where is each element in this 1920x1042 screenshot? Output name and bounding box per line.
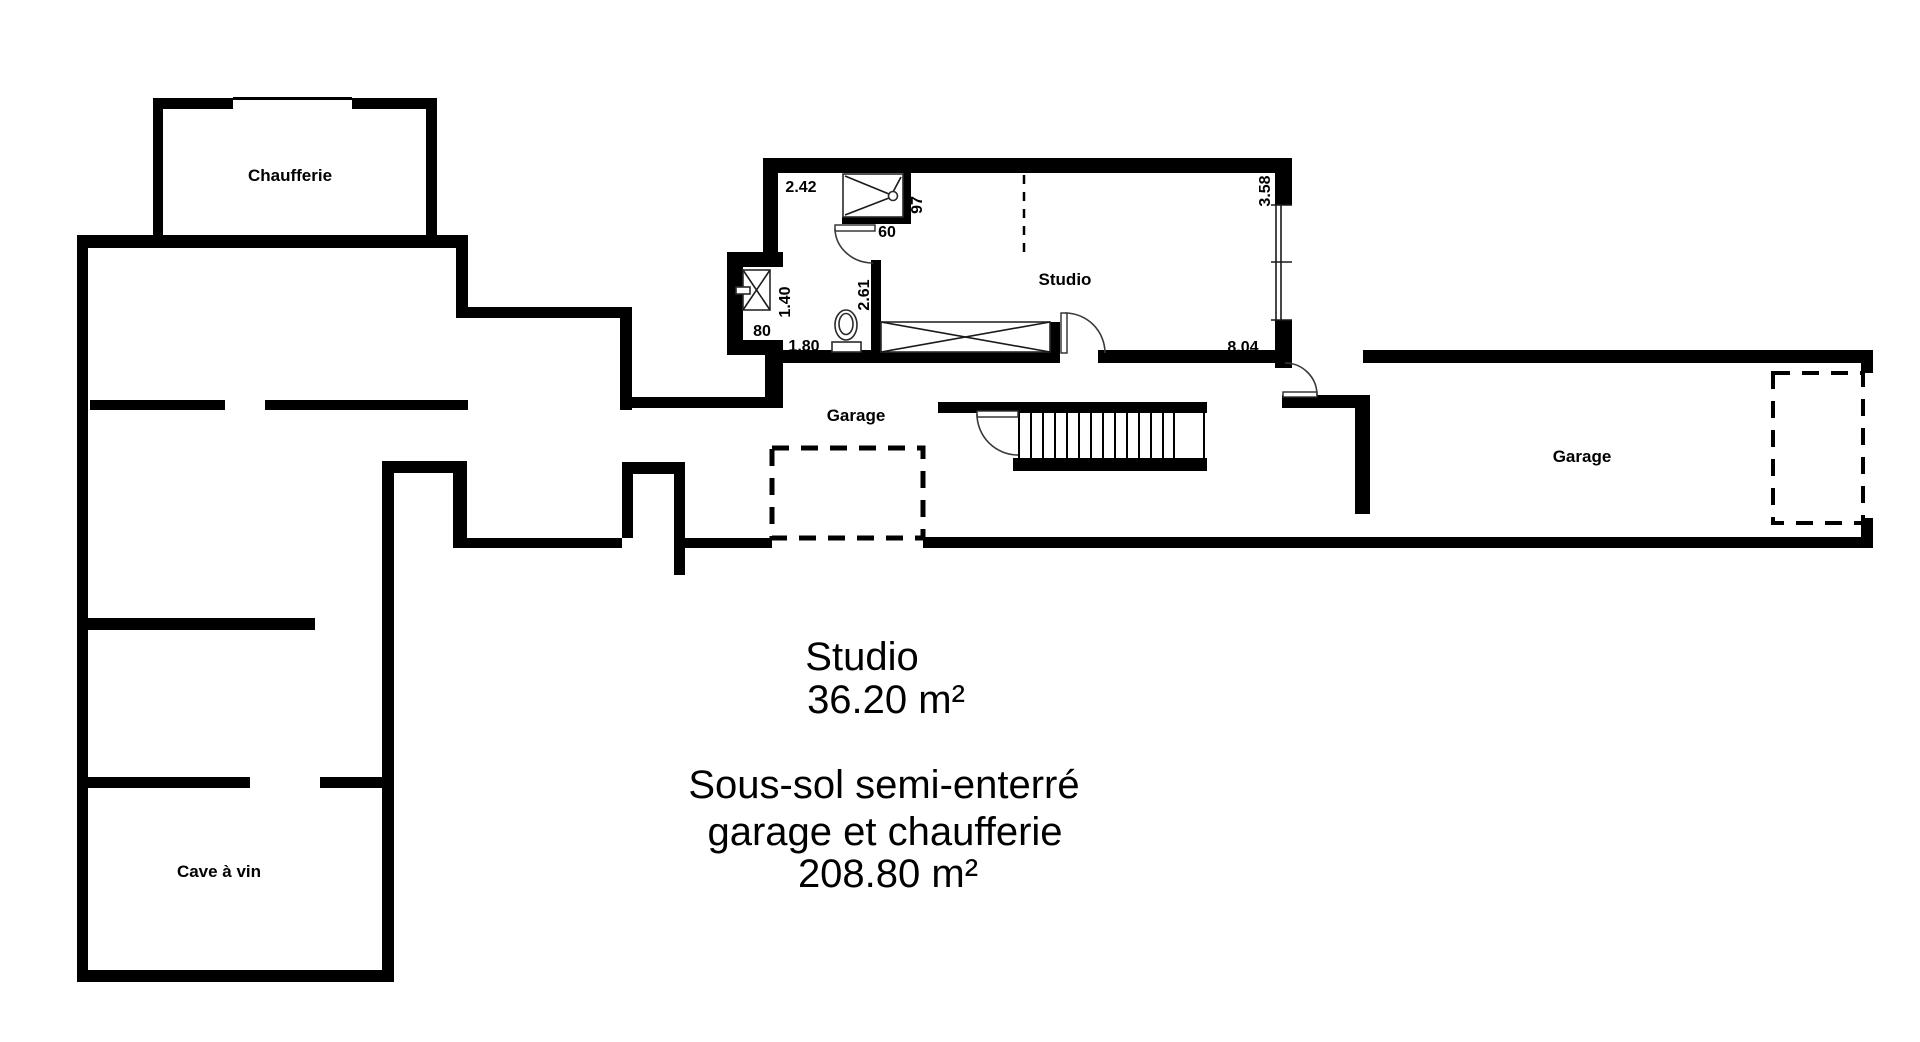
label-studio-room: Studio bbox=[1039, 270, 1092, 289]
partition-a-right bbox=[265, 400, 468, 410]
wall-bottom-a bbox=[453, 538, 622, 548]
summary-studio-label: Studio bbox=[805, 635, 918, 679]
shower-head-icon bbox=[889, 192, 898, 201]
sink-tap-icon bbox=[736, 287, 750, 294]
wall-studio-right-lower bbox=[1275, 320, 1292, 368]
wall-main-top bbox=[77, 235, 468, 248]
label-cave-a-vin: Cave à vin bbox=[177, 862, 261, 881]
wall-cap-1-vertical bbox=[453, 461, 467, 548]
label-garage-middle: Garage bbox=[827, 406, 886, 425]
shower bbox=[843, 174, 903, 217]
label-garage-right: Garage bbox=[1553, 447, 1612, 466]
dim-3-58: 3.58 bbox=[1257, 175, 1274, 206]
partition-a-left bbox=[90, 400, 225, 410]
wall-alcove-connector bbox=[765, 355, 783, 408]
summary-studio-area: 36.20 m² bbox=[807, 678, 965, 722]
wall-bottom-b bbox=[685, 538, 772, 548]
partition-c-left bbox=[86, 777, 250, 788]
summary-basement-line2: garage et chaufferie bbox=[707, 810, 1062, 854]
wall-closet-stub bbox=[1050, 322, 1060, 363]
wall-alcove-left bbox=[727, 252, 743, 355]
dim-1-80: 1,80 bbox=[788, 338, 819, 355]
label-chaufferie: Chaufferie bbox=[248, 166, 332, 185]
dim-2-42: 2.42 bbox=[785, 179, 816, 196]
wall-cave-right bbox=[382, 461, 394, 982]
wall-pier-left bbox=[622, 462, 633, 538]
wall-bottom-c bbox=[923, 537, 1870, 548]
dim-1-40: 1.40 bbox=[777, 286, 794, 317]
dim-8-04: 8.04 bbox=[1227, 339, 1258, 356]
wall-step-vertical-1 bbox=[456, 237, 468, 318]
wall-studio-left bbox=[763, 158, 778, 255]
floor-plan: Chaufferie Cave à vin Studio Garage Gara… bbox=[0, 0, 1920, 1042]
wall-chaufferie-left bbox=[153, 98, 163, 237]
wall-shower-bottom bbox=[842, 217, 911, 224]
partition-b bbox=[86, 618, 315, 630]
wall-outer-left bbox=[77, 235, 88, 982]
wall-chaufferie-top-right bbox=[352, 98, 437, 109]
stairs-bottom-stringer bbox=[1013, 458, 1207, 471]
dim-97: 97 bbox=[909, 196, 926, 214]
summary-basement-area: 208.80 m² bbox=[798, 852, 978, 896]
wall-garage-right-upper bbox=[1861, 350, 1873, 373]
wall-corridor-top bbox=[620, 397, 783, 408]
summary-basement-line1: Sous-sol semi-enterré bbox=[688, 763, 1079, 807]
wall-chaufferie-right bbox=[426, 98, 437, 237]
dim-60: 60 bbox=[878, 224, 896, 241]
dim-80: 80 bbox=[753, 323, 771, 340]
wall-step-vertical-2 bbox=[620, 307, 632, 410]
wall-alcove-bottom bbox=[727, 340, 783, 355]
dim-2-61: 2.61 bbox=[856, 279, 873, 310]
wall-studio-right-upper bbox=[1275, 158, 1292, 205]
wall-cave-bottom bbox=[77, 970, 394, 982]
wall-pier-right bbox=[674, 462, 685, 575]
closet-crossed-rect bbox=[881, 322, 1050, 352]
wall-studio-top bbox=[763, 158, 1292, 173]
floor-plan-page: Chaufferie Cave à vin Studio Garage Gara… bbox=[0, 0, 1920, 1042]
wall-chaufferie-top-left bbox=[153, 98, 233, 109]
wall-l-vertical bbox=[1355, 395, 1370, 514]
wall-garage-top bbox=[1363, 350, 1873, 363]
wall-step-horizontal-1 bbox=[456, 307, 632, 318]
wall-chaufferie-opening-line bbox=[233, 97, 352, 100]
